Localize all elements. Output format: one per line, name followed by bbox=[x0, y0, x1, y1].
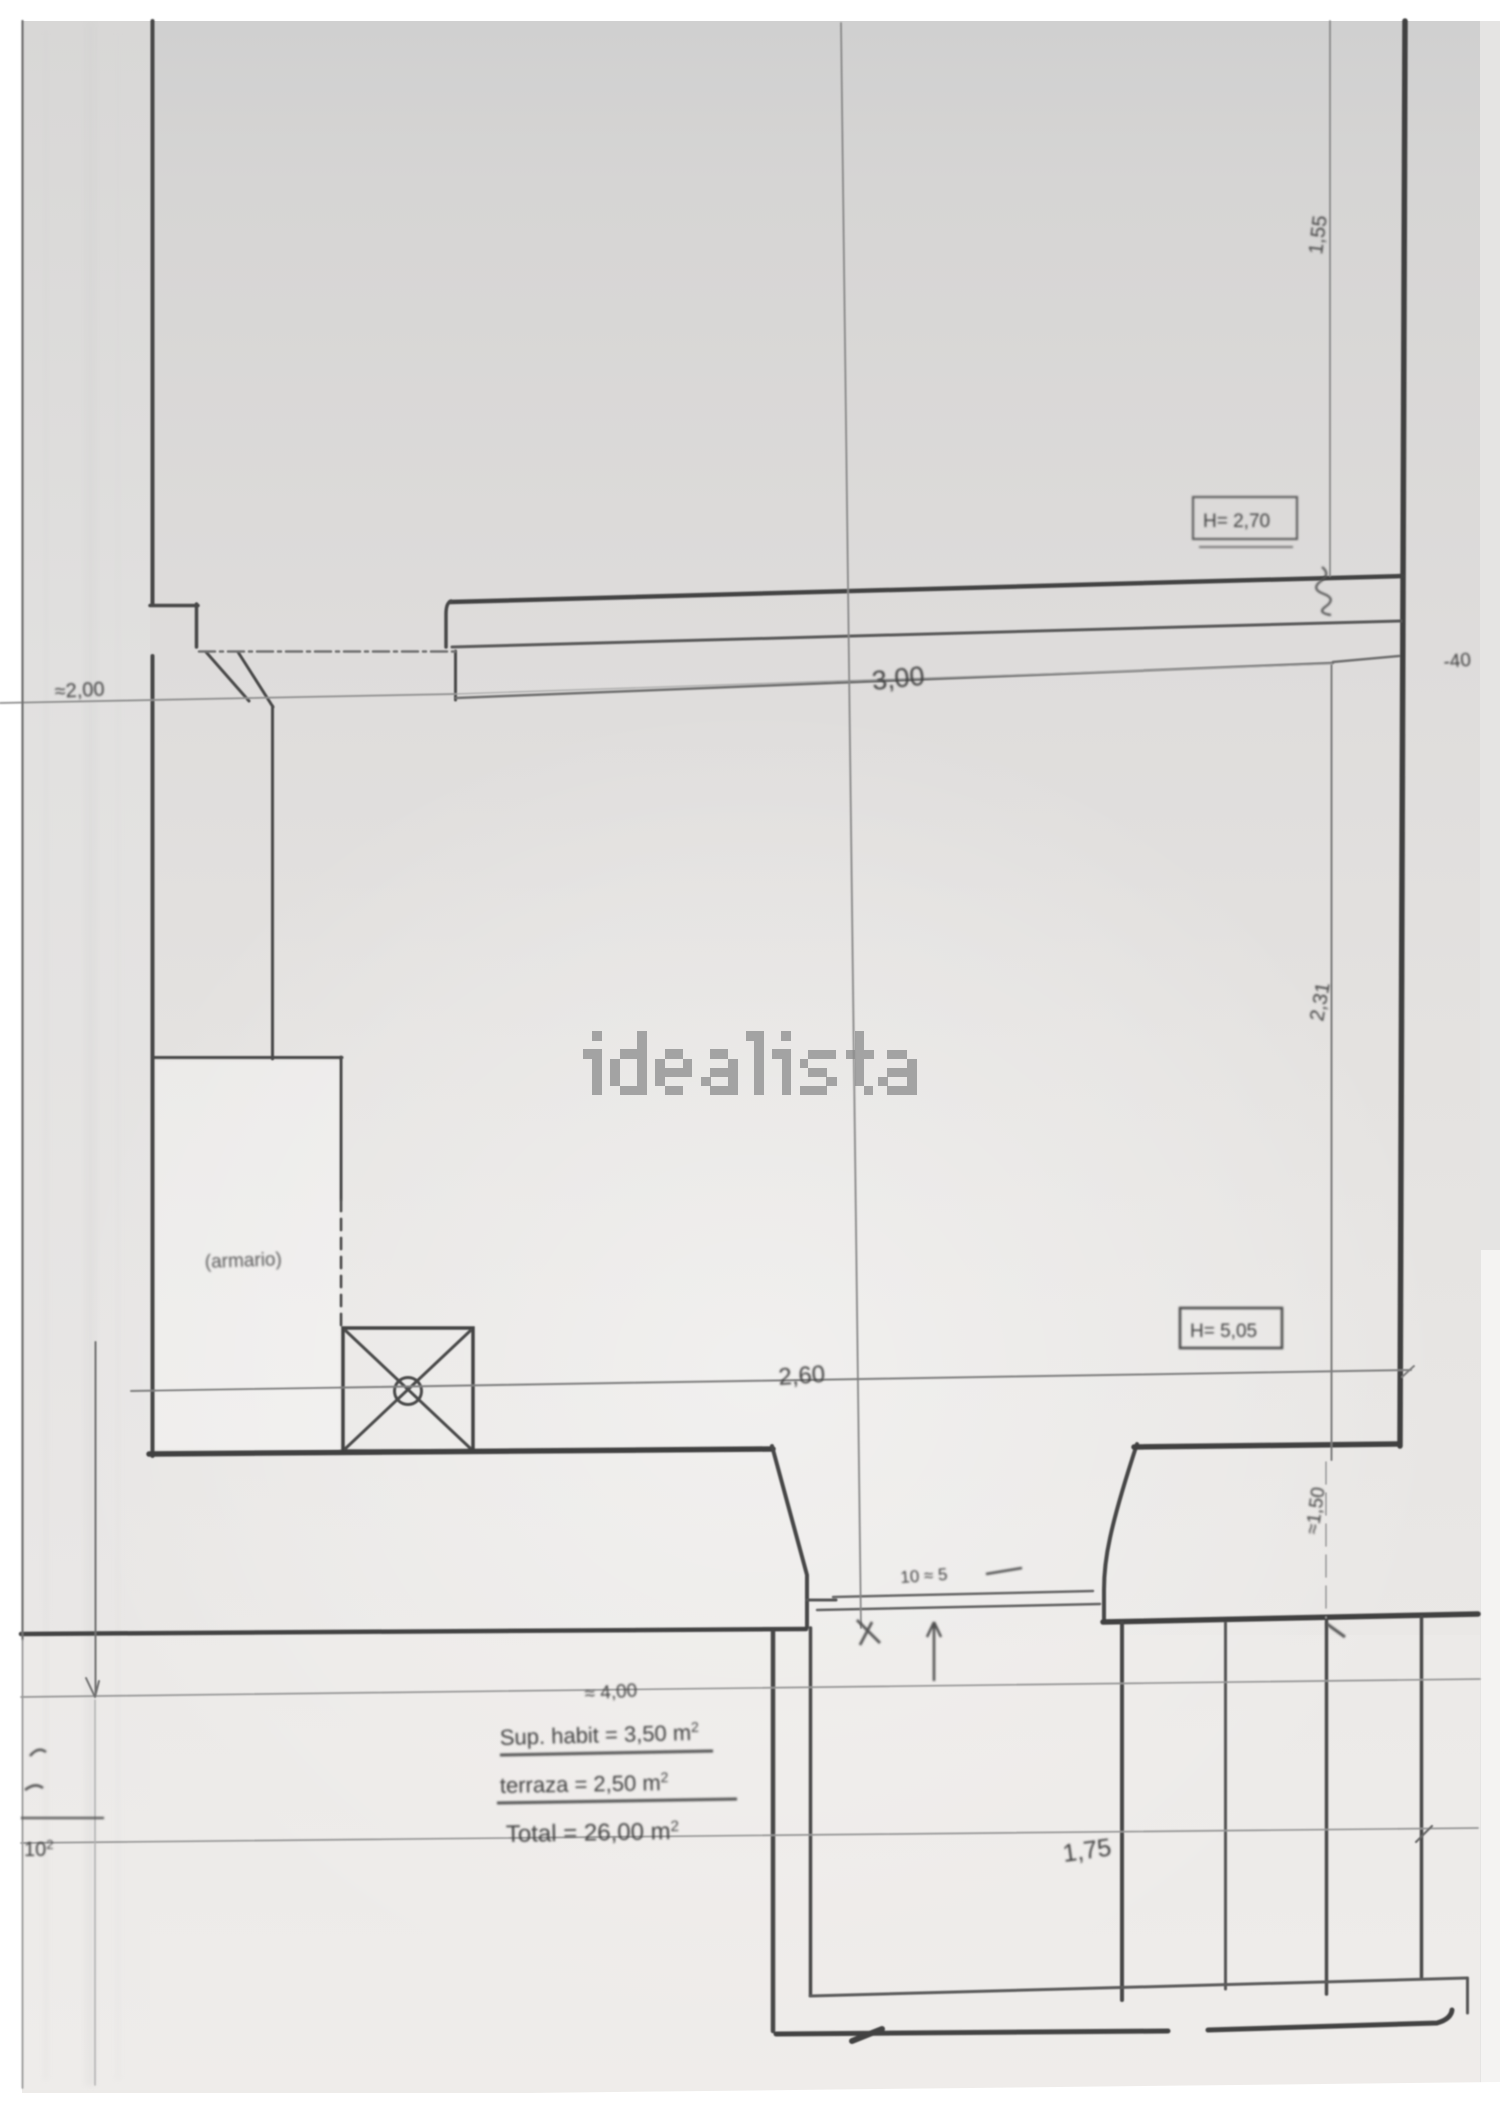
svg-text:Total = 26,00 m2: Total = 26,00 m2 bbox=[506, 1818, 680, 1848]
svg-text:H= 5,05: H= 5,05 bbox=[1190, 1321, 1257, 1342]
svg-text:(armario): (armario) bbox=[204, 1249, 282, 1273]
svg-text:≈2,00: ≈2,00 bbox=[54, 678, 105, 703]
svg-text:≈ 4,00: ≈ 4,00 bbox=[584, 1680, 638, 1705]
svg-text:3,00: 3,00 bbox=[870, 661, 925, 696]
svg-text:Sup. habit = 3,50 m2: Sup. habit = 3,50 m2 bbox=[499, 1719, 699, 1750]
svg-text:10 ≈ 5: 10 ≈ 5 bbox=[900, 1565, 948, 1587]
svg-text:terraza = 2,50 m2: terraza = 2,50 m2 bbox=[500, 1769, 669, 1798]
svg-text:H= 2,70: H= 2,70 bbox=[1203, 511, 1270, 532]
svg-text:-40: -40 bbox=[1443, 650, 1472, 673]
svg-text:1,55: 1,55 bbox=[1305, 214, 1332, 255]
svg-text:2,60: 2,60 bbox=[778, 1361, 826, 1391]
